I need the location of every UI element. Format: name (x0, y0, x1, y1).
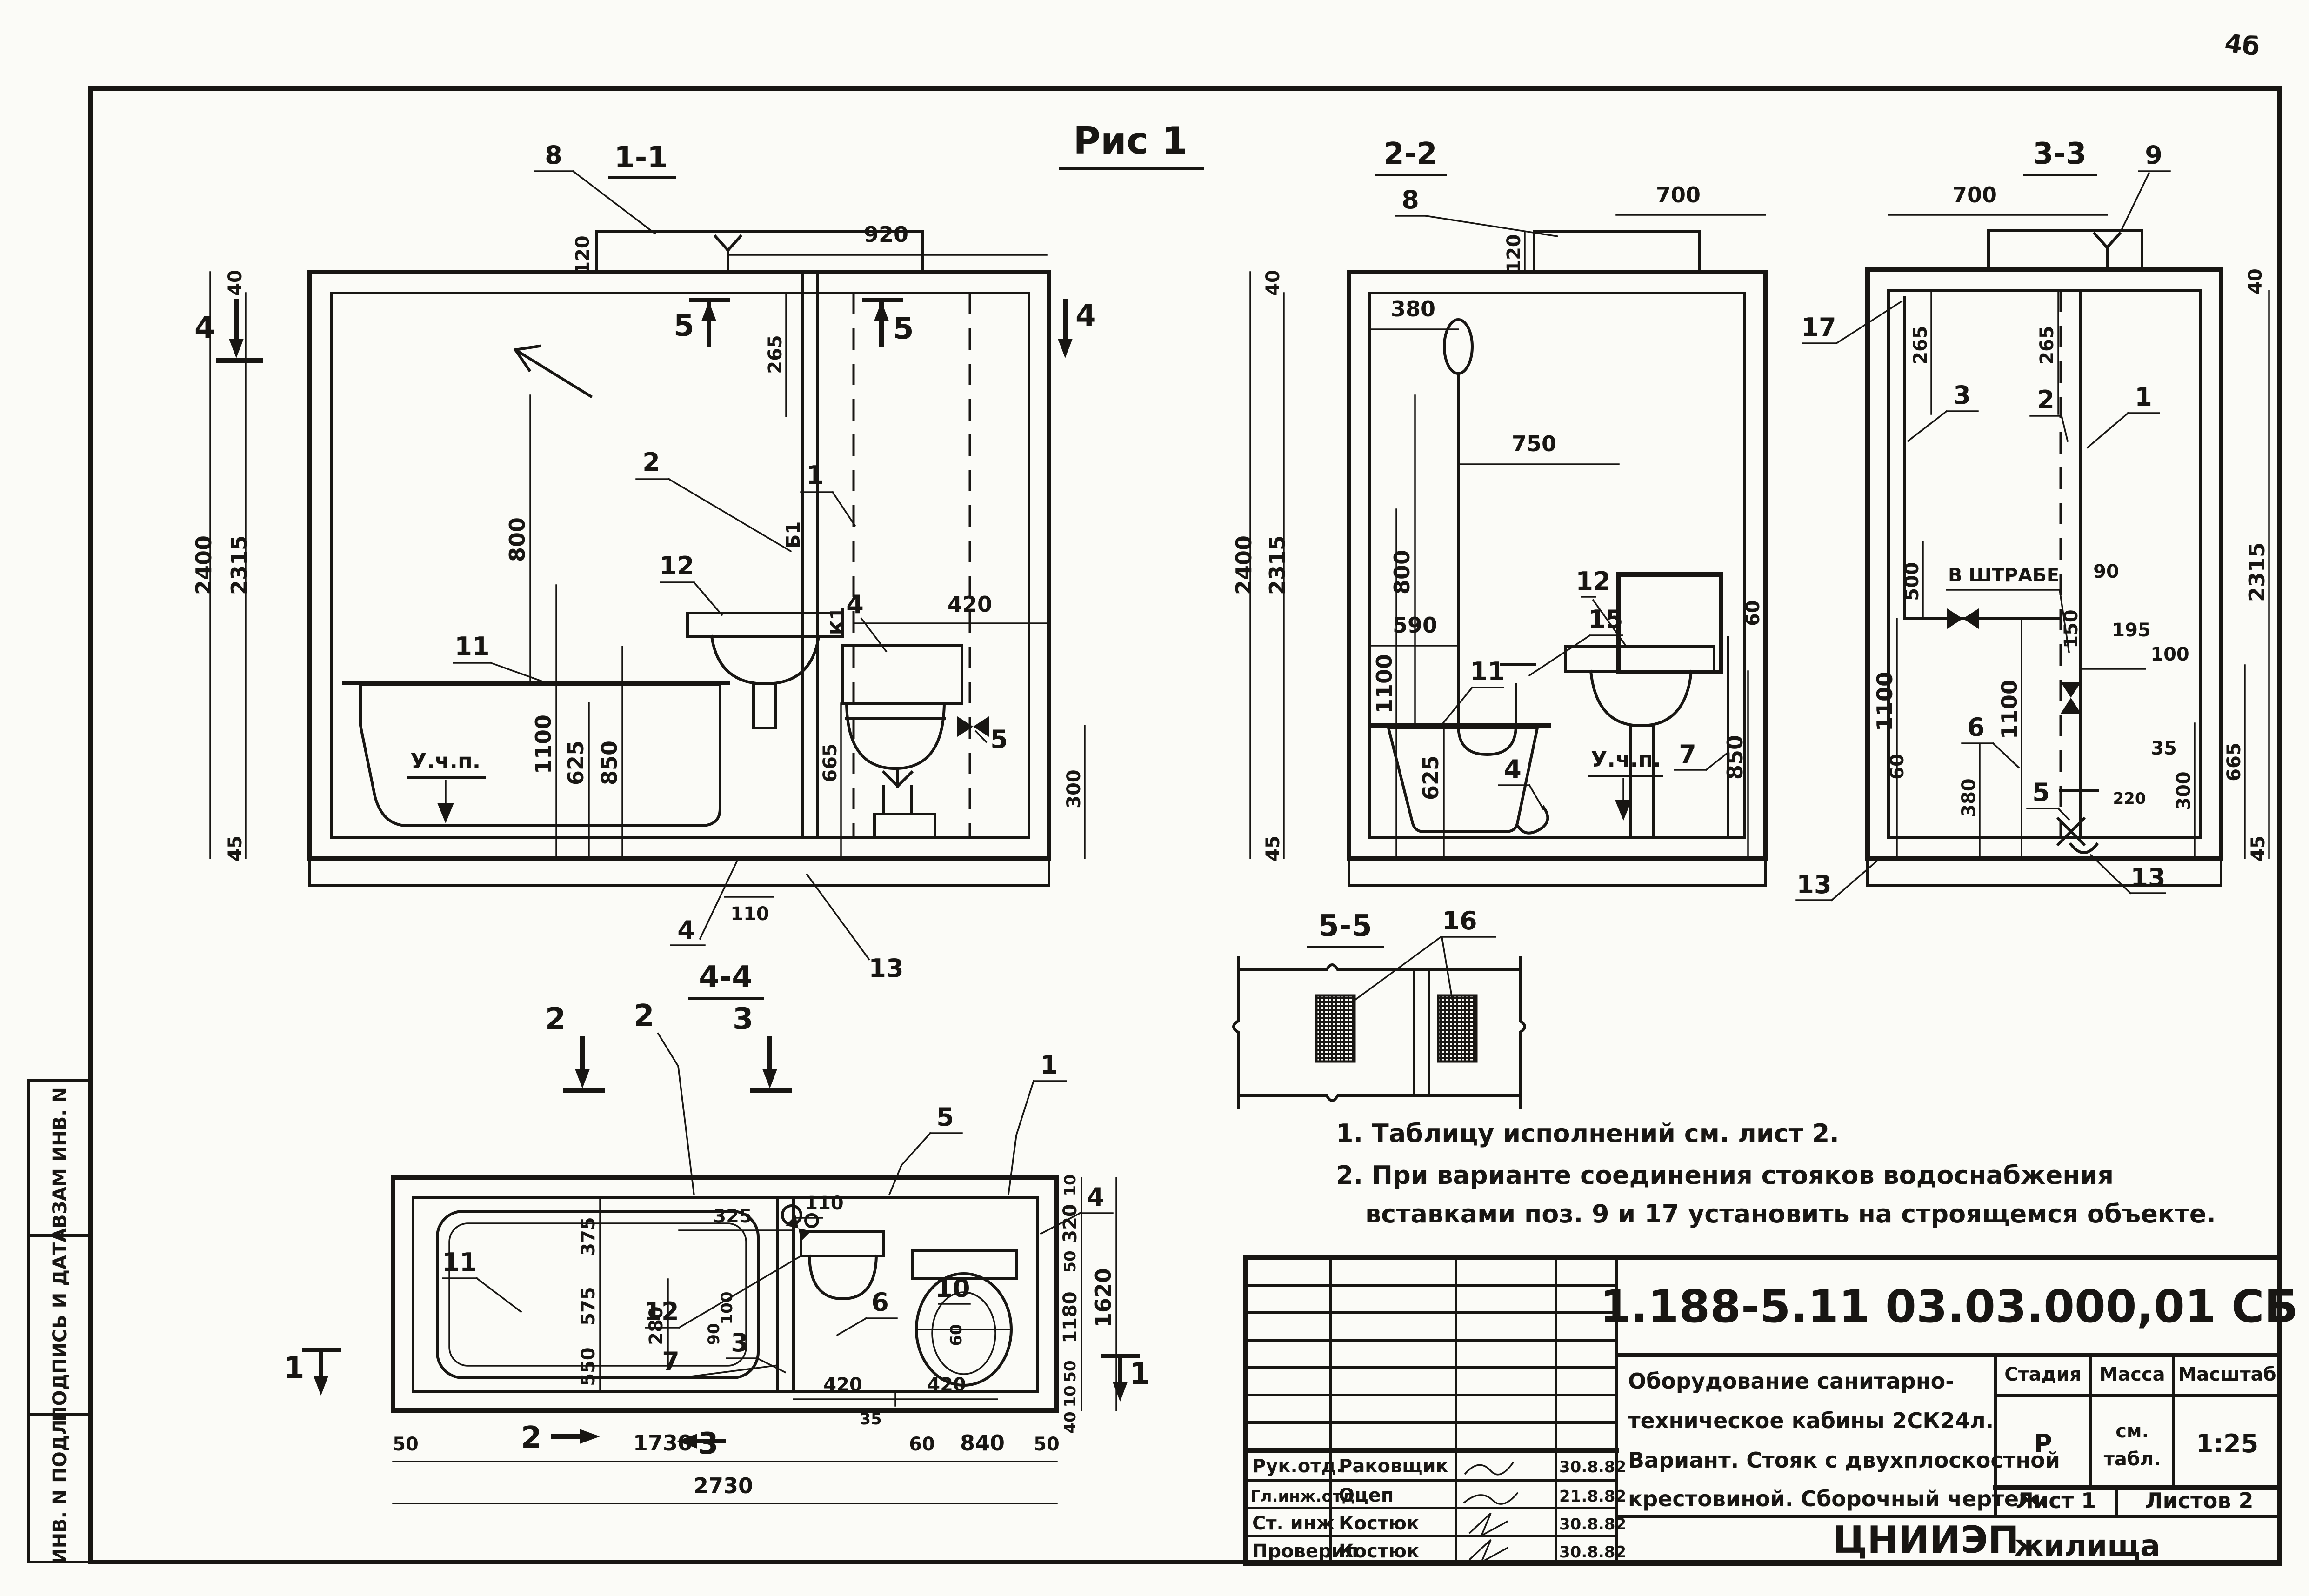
view-4-4: 4-4 2 2 3 2 3 1 1 (284, 960, 1150, 1503)
section-mark-1-left: 1 (284, 1350, 339, 1396)
bath-faucet (1518, 807, 1548, 833)
riser-plan (806, 1215, 818, 1227)
pos-13: 13 (807, 875, 904, 983)
svg-text:21.8.82: 21.8.82 (1559, 1487, 1626, 1506)
svg-text:5: 5 (990, 725, 1008, 754)
toilet-bowl (847, 703, 944, 768)
svg-text:30.8.82: 30.8.82 (1559, 1543, 1626, 1562)
svg-text:11: 11 (442, 1248, 477, 1277)
pos-1: 1 (2088, 382, 2159, 447)
svg-text:13: 13 (1796, 870, 1831, 899)
view-1-1: 1-1 Б1 К1 4 4 5 5 (191, 140, 1096, 983)
svg-text:10: 10 (1061, 1174, 1080, 1196)
signature (1470, 1540, 1507, 1562)
pos-1: 1 (801, 461, 855, 526)
figure-title: Рис 1 (1061, 119, 1202, 168)
sheet-number: Лист 1 (2016, 1488, 2096, 1513)
note-line-1: 1. Таблицу исполнений см. лист 2. (1336, 1119, 1839, 1148)
svg-text:280: 280 (646, 1306, 667, 1345)
svg-text:4: 4 (1075, 299, 1096, 333)
svg-text:45: 45 (1262, 835, 1284, 861)
svg-text:625: 625 (563, 741, 588, 785)
svg-text:12: 12 (659, 551, 694, 581)
section-mark-1-right: 1 (1103, 1356, 1150, 1402)
doc-number: 1.188-5.11 03.03.000,01 СБ (1600, 1281, 2298, 1333)
signature (1470, 1513, 1507, 1536)
svg-text:380: 380 (1391, 296, 1435, 321)
svg-text:50: 50 (1061, 1360, 1080, 1382)
svg-text:420: 420 (823, 1374, 862, 1396)
svg-text:1100: 1100 (531, 715, 556, 774)
svg-text:265: 265 (765, 335, 786, 374)
section-mark-4-left: 4 (194, 301, 260, 361)
svg-text:90: 90 (2093, 561, 2119, 582)
svg-text:4: 4 (194, 311, 215, 345)
svg-text:Раковщик: Раковщик (1339, 1456, 1448, 1477)
svg-text:5: 5 (674, 309, 694, 343)
svg-text:90: 90 (705, 1323, 723, 1345)
section-mark-5-right: 5 (864, 300, 914, 346)
svg-text:2315: 2315 (1265, 535, 1290, 595)
svg-text:120: 120 (1503, 234, 1525, 273)
svg-text:2730: 2730 (694, 1473, 753, 1498)
svg-text:2: 2 (521, 1421, 542, 1455)
pos-17: 17 (1801, 301, 1902, 343)
stamp-inv-podl: ИНВ. N ПОДЛ. (49, 1412, 71, 1564)
svg-text:100: 100 (718, 1292, 736, 1325)
view-2-2-title: 2-2 (1383, 137, 1437, 171)
svg-text:6: 6 (871, 1288, 889, 1317)
washbasin-pedestal (1630, 726, 1654, 837)
sign-row-4: Проверил Костюк 30.8.82 (1252, 1540, 1626, 1562)
sign-row-2: Гл.инж.отд Оцеп 21.8.82 (1250, 1485, 1626, 1506)
pos-5: 5 (2027, 778, 2069, 820)
svg-text:жилища: жилища (2014, 1529, 2160, 1563)
notes: 1. Таблицу исполнений см. лист 2. 2. При… (1336, 1119, 2216, 1229)
svg-text:4: 4 (677, 915, 695, 945)
note-line-2: 2. При варианте соединения стояков водос… (1336, 1161, 2114, 1190)
svg-text:300: 300 (1063, 769, 1085, 808)
svg-text:4: 4 (1504, 755, 1522, 784)
riser-label-k1: К1 (827, 607, 848, 635)
svg-text:60: 60 (909, 1434, 935, 1455)
svg-text:265: 265 (2036, 326, 2058, 365)
view-4-4-title: 4-4 (699, 960, 753, 995)
svg-text:8: 8 (545, 140, 562, 170)
svg-text:40: 40 (1061, 1411, 1080, 1433)
svg-text:Оборудование санитарно-: Оборудование санитарно- (1628, 1369, 1954, 1394)
riser-label-b1: Б1 (783, 521, 804, 548)
washbasin-bowl (1591, 671, 1691, 726)
svg-text:195: 195 (2112, 620, 2151, 641)
pos-7: 7 (1675, 740, 1727, 770)
panel-right-edge (1520, 957, 1525, 1108)
svg-text:1180: 1180 (1060, 1291, 1081, 1343)
svg-text:100: 100 (2150, 644, 2189, 665)
section-mark-2-top-b: 2 (634, 999, 694, 1195)
valve-icon (786, 1215, 811, 1241)
svg-text:700: 700 (1952, 182, 1997, 207)
svg-text:800: 800 (1389, 550, 1415, 594)
cross-fitting (2058, 791, 2098, 853)
svg-text:265: 265 (1910, 326, 1931, 365)
blueprint-canvas: 4б ВЗАМ ИНВ. N ПОДПИСЬ И ДАТА ИНВ. N ПОД… (0, 0, 2309, 1596)
svg-text:5: 5 (936, 1102, 954, 1132)
svg-text:300: 300 (2173, 771, 2195, 810)
svg-text:ЦНИИЭП: ЦНИИЭП (1833, 1518, 2019, 1562)
svg-text:13: 13 (2130, 863, 2165, 892)
svg-text:3: 3 (1953, 381, 1971, 410)
pos-4-trap: 4 (671, 861, 737, 945)
svg-text:Масса: Масса (2099, 1364, 2165, 1385)
svg-text:11: 11 (1470, 657, 1505, 686)
svg-text:4: 4 (1087, 1182, 1104, 1212)
pos-10: 10 (935, 1274, 970, 1304)
svg-text:1100: 1100 (1372, 654, 1397, 714)
washbasin-plan-shelf (801, 1232, 884, 1256)
note-line-3: вставками поз. 9 и 17 установить на стро… (1365, 1199, 2216, 1229)
panel-bottom-edge (1238, 1095, 1520, 1101)
pos-5: 5 (889, 1102, 962, 1195)
sheets-total: Листов 2 (2145, 1488, 2253, 1513)
svg-text:665: 665 (2223, 742, 2245, 781)
svg-text:700: 700 (1656, 182, 1701, 207)
washbasin-shelf (687, 613, 843, 636)
svg-text:2: 2 (545, 1002, 566, 1036)
dims-3-3: 700 40 2315 45 265 265 500 90 150 195 11… (1872, 182, 2269, 861)
svg-text:800: 800 (505, 517, 530, 562)
svg-text:15: 15 (1588, 605, 1623, 634)
svg-text:420: 420 (927, 1374, 966, 1396)
svg-text:17: 17 (1801, 313, 1836, 342)
svg-text:У.ч.п.: У.ч.п. (1591, 747, 1661, 772)
svg-text:375: 375 (578, 1217, 599, 1256)
mirror-cabinet (1619, 574, 1721, 672)
section-mark-4-right: 4 (1058, 299, 1096, 358)
pos-2: 2 (2030, 385, 2068, 441)
svg-text:50: 50 (1034, 1434, 1060, 1455)
signature (1464, 1493, 1517, 1504)
pos-11: 11 (442, 1248, 521, 1312)
svg-text:920: 920 (864, 222, 908, 247)
svg-text:220: 220 (2113, 789, 2146, 808)
svg-text:7: 7 (662, 1347, 680, 1376)
svg-text:1: 1 (2135, 382, 2152, 412)
svg-text:16: 16 (1442, 906, 1477, 935)
view-1-1-title: 1-1 (614, 140, 668, 175)
svg-text:Костюк: Костюк (1339, 1541, 1419, 1562)
svg-text:45: 45 (225, 835, 246, 861)
svg-text:1: 1 (806, 461, 824, 490)
svg-text:2400: 2400 (1231, 535, 1256, 595)
svg-text:9: 9 (2145, 140, 2162, 170)
section-mark-3-top: 3 (733, 1002, 790, 1091)
stamp-vzam-inv: ВЗАМ ИНВ. N (49, 1087, 71, 1229)
svg-text:1100: 1100 (1872, 672, 1897, 731)
svg-text:1620: 1620 (1091, 1268, 1116, 1328)
svg-text:60: 60 (1742, 600, 1764, 626)
pos-1: 1 (1008, 1050, 1066, 1195)
svg-text:В ШТРАБЕ: В ШТРАБЕ (1948, 565, 2059, 586)
roof-cap (1534, 232, 1699, 272)
corner-page-mark: 4б (2223, 28, 2262, 62)
valve-icon (957, 716, 989, 737)
svg-text:850: 850 (597, 741, 622, 785)
svg-text:40: 40 (225, 270, 246, 296)
svg-text:40: 40 (2245, 268, 2266, 294)
pos-11: 11 (454, 632, 547, 683)
washbasin-trap (754, 684, 776, 728)
cabin-base (309, 858, 1049, 885)
svg-text:60: 60 (1887, 754, 1908, 780)
svg-text:2315: 2315 (227, 535, 252, 595)
panel-top-edge (1238, 965, 1520, 970)
pos-4-cistern: 4 (846, 590, 886, 651)
stamp-podpis-data: ПОДПИСЬ И ДАТА (49, 1228, 71, 1422)
vent-y-icon (2095, 234, 2120, 270)
view-2-2: 2-2 8 15 7 12 11 4 (1231, 137, 1765, 885)
gasket-pad (1438, 995, 1476, 1062)
pos-3: 3 (1908, 381, 1978, 441)
svg-text:Масштаб: Масштаб (2178, 1364, 2276, 1385)
valve-icon (2061, 682, 2081, 714)
signature (1465, 1462, 1513, 1475)
section-mark-2-bottom: 2 (521, 1421, 600, 1455)
view-5-5-title: 5-5 (1318, 909, 1372, 943)
svg-text:4: 4 (846, 590, 864, 619)
svg-text:500: 500 (1902, 562, 1923, 601)
svg-text:табл.: табл. (2104, 1449, 2161, 1470)
svg-text:2: 2 (2037, 385, 2055, 414)
gasket-pad (1316, 995, 1355, 1062)
svg-text:Р: Р (2034, 1429, 2052, 1458)
title-block: Рук.отд. Раковщик 30.8.82 Гл.инж.отд Оце… (1246, 1258, 2298, 1564)
floor-level-mark: У.ч.п. (408, 748, 485, 823)
pos-13-right: 13 (2091, 855, 2166, 893)
section-mark-2-top-a: 2 (545, 1002, 602, 1091)
svg-text:120: 120 (572, 235, 594, 274)
svg-text:Оцеп: Оцеп (1339, 1485, 1394, 1506)
side-stamp: ВЗАМ ИНВ. N ПОДПИСЬ И ДАТА ИНВ. N ПОДЛ. (29, 1080, 91, 1564)
svg-text:840: 840 (960, 1430, 1005, 1456)
svg-text:380: 380 (1958, 778, 1980, 817)
svg-text:7: 7 (1679, 740, 1696, 769)
drawing-sheet: 4б ВЗАМ ИНВ. N ПОДПИСЬ И ДАТА ИНВ. N ПОД… (0, 0, 2309, 1596)
svg-text:35: 35 (860, 1410, 881, 1429)
svg-text:320: 320 (1060, 1204, 1081, 1243)
svg-text:45: 45 (2248, 835, 2269, 861)
svg-text:1: 1 (1040, 1050, 1058, 1080)
toilet-cistern (843, 646, 962, 703)
sign-row-1: Рук.отд. Раковщик 30.8.82 (1252, 1456, 1626, 1477)
svg-text:2315: 2315 (2244, 542, 2269, 602)
svg-text:Костюк: Костюк (1339, 1513, 1419, 1534)
organization: ЦНИИЭП жилища (1833, 1518, 2160, 1563)
toilet-base (874, 814, 935, 837)
svg-text:50: 50 (1061, 1250, 1080, 1272)
shtrabe-note: В ШТРАБЕ (1947, 565, 2069, 652)
svg-text:750: 750 (1512, 431, 1556, 456)
view-3-3-title: 3-3 (2033, 137, 2087, 171)
svg-text:Стадия: Стадия (2004, 1364, 2082, 1385)
svg-text:590: 590 (1393, 613, 1437, 638)
svg-text:1100: 1100 (1997, 680, 2022, 739)
shower-head (1444, 320, 1472, 374)
svg-text:1: 1 (284, 1351, 305, 1385)
view-3-3: 3-3 17 9 3 2 1 6 5 (1796, 137, 2269, 900)
svg-text:5: 5 (893, 312, 914, 346)
panel-left-edge (1234, 957, 1238, 1108)
svg-text:6: 6 (1967, 713, 1985, 742)
svg-text:2400: 2400 (191, 535, 216, 595)
svg-text:13: 13 (868, 954, 903, 983)
svg-text:11: 11 (454, 632, 489, 661)
toilet-flush-pipe (884, 768, 912, 814)
svg-text:1730: 1730 (633, 1430, 693, 1456)
svg-text:крестовиной. Сборочный чертеж.: крестовиной. Сборочный чертеж. (1628, 1486, 2048, 1511)
svg-text:У.ч.п.: У.ч.п. (410, 748, 480, 774)
pos-8: 8 (1395, 185, 1557, 236)
svg-text:420: 420 (948, 592, 992, 617)
pos-9: 9 (2122, 140, 2170, 229)
svg-text:110: 110 (730, 903, 769, 925)
washbasin-plan-bowl (809, 1256, 876, 1299)
valve-icon (1947, 608, 1979, 629)
svg-text:60: 60 (947, 1324, 966, 1346)
svg-text:625: 625 (1418, 755, 1443, 800)
svg-text:325: 325 (713, 1206, 752, 1227)
svg-text:5: 5 (2032, 778, 2050, 807)
svg-text:1:25: 1:25 (2196, 1429, 2258, 1458)
section-mark-5-left: 5 (674, 300, 728, 345)
pos-2: 2 (636, 447, 791, 551)
pos-12: 12 (659, 551, 722, 615)
svg-text:см.: см. (2115, 1421, 2149, 1442)
pos-15: 15 (1529, 605, 1623, 675)
pos-16: 16 (1356, 906, 1495, 999)
svg-text:1: 1 (1129, 1357, 1150, 1391)
svg-text:Ст. инж: Ст. инж (1252, 1513, 1335, 1534)
svg-text:50: 50 (393, 1434, 419, 1455)
svg-text:Рук.отд.: Рук.отд. (1252, 1456, 1343, 1477)
view-5-5: 5-5 16 (1234, 906, 1525, 1108)
svg-text:техническое кабины 2СК24л.: техническое кабины 2СК24л. (1628, 1408, 1994, 1433)
svg-text:3: 3 (698, 1427, 719, 1461)
svg-text:2: 2 (642, 447, 660, 477)
svg-text:110: 110 (805, 1193, 844, 1214)
svg-text:850: 850 (1722, 735, 1748, 780)
shower-bracket-icon (515, 346, 591, 396)
svg-text:665: 665 (820, 743, 841, 782)
pos-11: 11 (1441, 657, 1505, 726)
svg-text:3: 3 (733, 1002, 754, 1036)
svg-text:35: 35 (2151, 738, 2177, 759)
figure-title-text: Рис 1 (1073, 119, 1188, 162)
pos-6: 6 (837, 1288, 897, 1335)
svg-text:575: 575 (578, 1287, 599, 1326)
svg-text:8: 8 (1401, 185, 1419, 214)
washbasin-shelf (1565, 647, 1714, 671)
svg-text:40: 40 (1262, 270, 1284, 296)
svg-text:10: 10 (935, 1274, 970, 1303)
floor-level-mark: У.ч.п. (1589, 747, 1662, 821)
svg-text:2: 2 (634, 999, 654, 1033)
dims-1-1: 920 120 40 2400 2315 45 265 800 1100 625… (191, 222, 1085, 925)
svg-text:550: 550 (578, 1347, 599, 1386)
svg-text:30.8.82: 30.8.82 (1559, 1458, 1626, 1476)
svg-text:10: 10 (1061, 1385, 1080, 1407)
svg-text:Вариант. Стояк с двухплоскостн: Вариант. Стояк с двухплоскостной (1628, 1448, 2060, 1473)
svg-text:3: 3 (731, 1328, 748, 1357)
svg-text:12: 12 (1575, 567, 1610, 596)
sign-row-3: Ст. инж Костюк 30.8.82 (1252, 1513, 1626, 1536)
